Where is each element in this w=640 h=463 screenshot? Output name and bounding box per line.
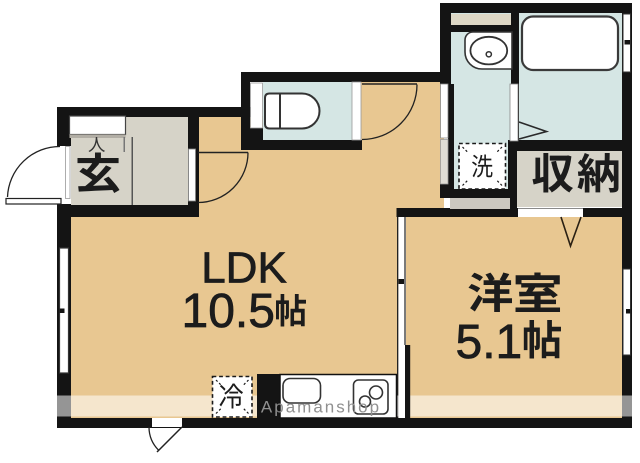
svg-text:Apamanshop: Apamanshop	[261, 398, 381, 417]
svg-text:10.5: 10.5	[182, 285, 275, 338]
svg-text:5.1: 5.1	[456, 316, 523, 369]
